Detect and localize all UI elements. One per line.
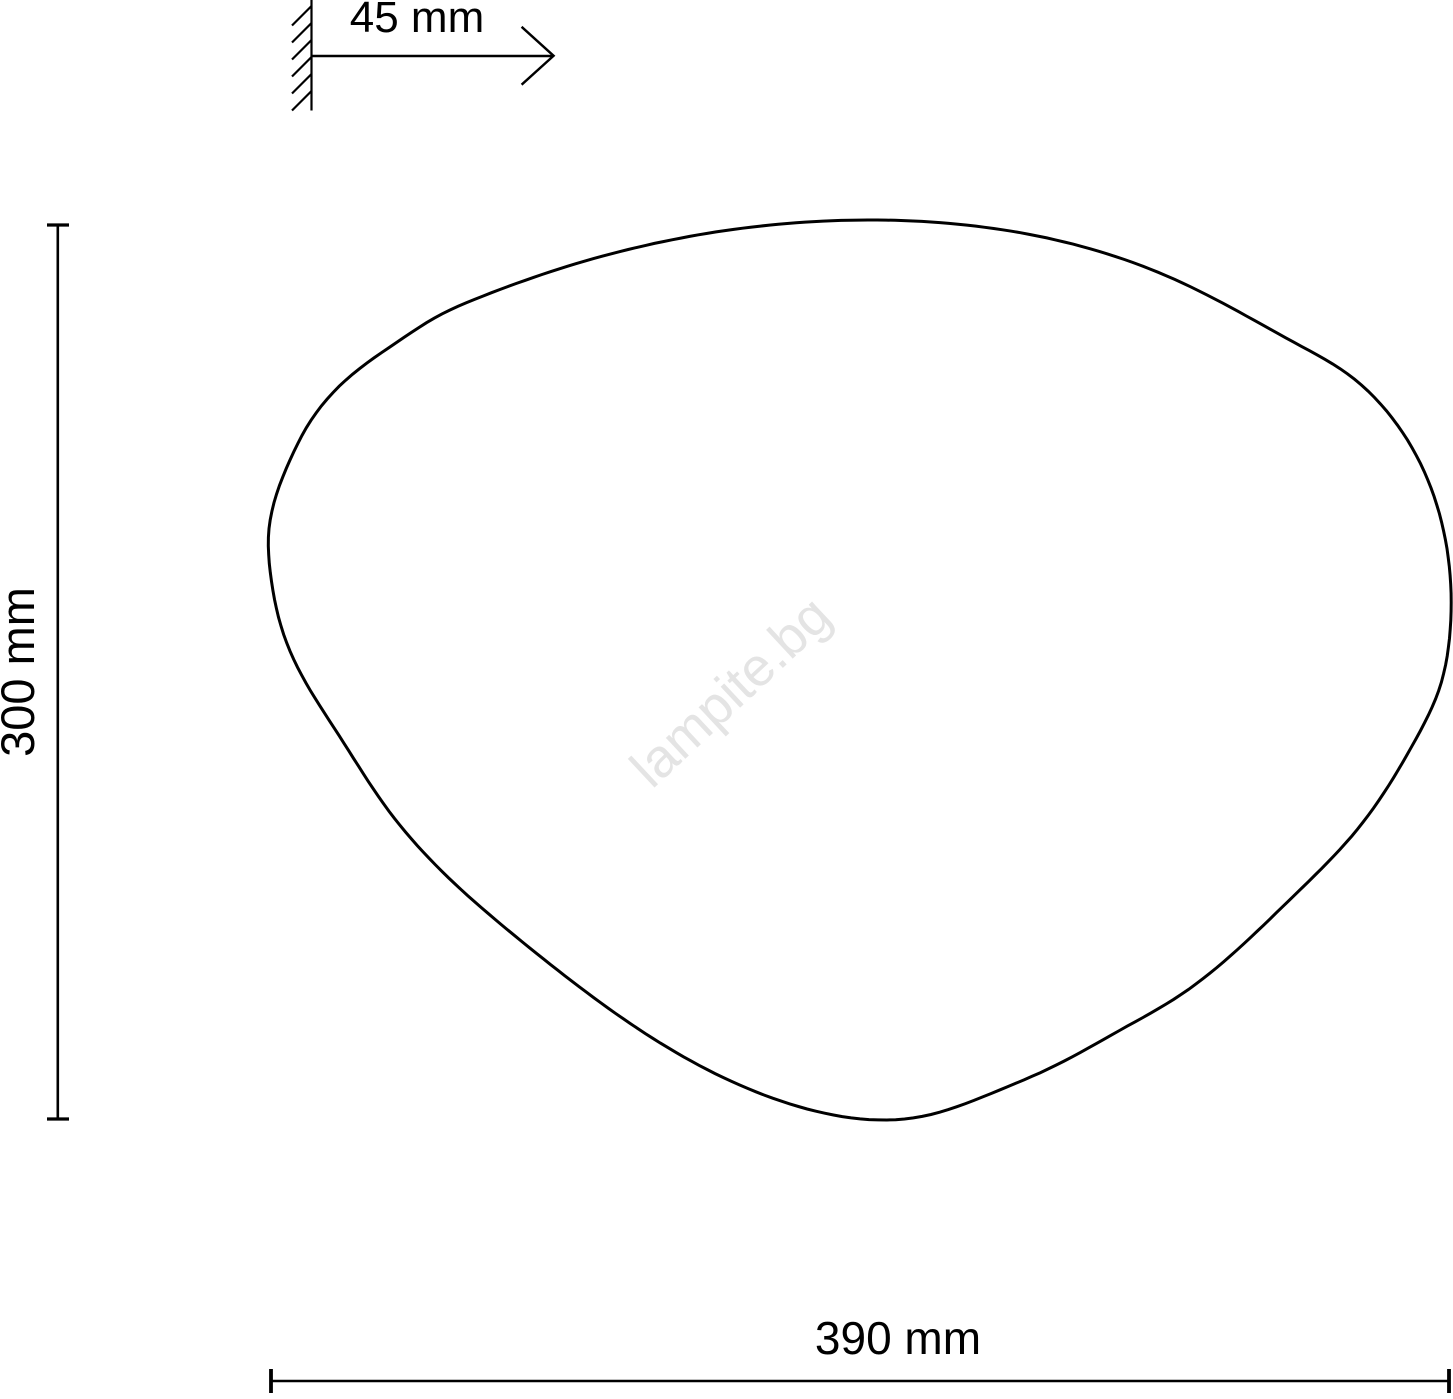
svg-text:45 mm: 45 mm bbox=[350, 0, 484, 42]
svg-text:390 mm: 390 mm bbox=[815, 1312, 981, 1364]
svg-text:300 mm: 300 mm bbox=[0, 587, 44, 757]
svg-text:lampite.bg: lampite.bg bbox=[619, 585, 842, 799]
